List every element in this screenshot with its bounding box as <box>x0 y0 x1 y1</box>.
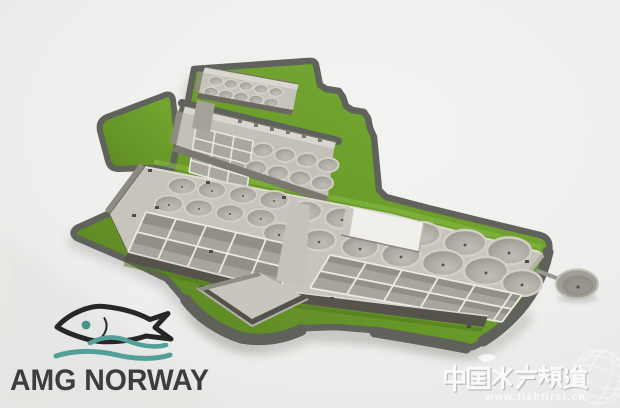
svg-text:AMG NORWAY: AMG NORWAY <box>10 364 209 397</box>
svg-text:www.fishfirst.cn: www.fishfirst.cn <box>485 392 587 403</box>
